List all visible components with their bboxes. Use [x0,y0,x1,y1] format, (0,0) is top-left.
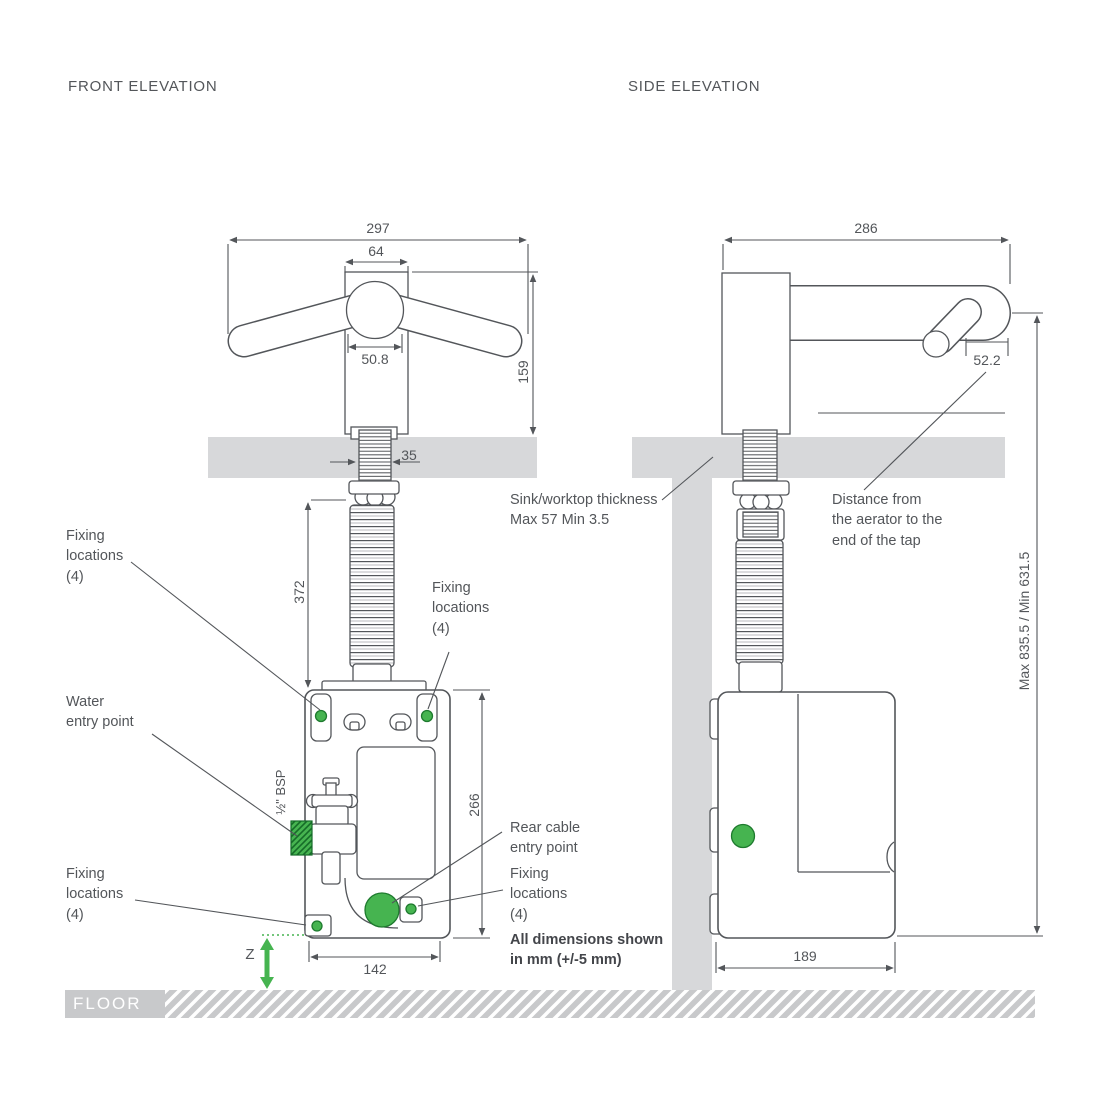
water-inlet-fitting [291,821,312,855]
fixing-point-bottom-left [312,921,322,931]
side-tap [722,273,983,692]
fixing-point-bottom-right [406,904,416,914]
side-aerator [923,331,949,357]
front-flexible-hose [350,505,394,667]
dim-z: Z [240,946,260,963]
dim-stem-width: 35 [392,447,426,463]
label-floor: FLOOR [73,994,142,1014]
side-elevation-title: SIDE ELEVATION [628,78,760,95]
side-cable-entry [732,825,755,848]
side-control-box [710,692,895,938]
fixing-point-top-left [316,711,327,722]
dim-height-range: Max 835.5 / Min 631.5 [1016,536,1032,706]
floor-band [65,990,1035,1018]
label-fixing-top-left: Fixing locations (4) [66,526,123,587]
label-fixing-bottom-right: Fixing locations (4) [510,864,567,925]
dimension-drawing-page: FRONT ELEVATION SIDE ELEVATION 297 64 50… [0,0,1100,1100]
label-water-entry: Water entry point [66,692,134,733]
side-hose-connector [739,662,782,692]
front-threaded-stem [359,430,391,482]
front-elevation-title: FRONT ELEVATION [68,78,218,95]
dim-aerator-to-end: 52.2 [962,352,1012,368]
dim-body-width: 64 [356,243,396,259]
label-rear-cable: Rear cable entry point [510,818,580,859]
rear-cable-entry [365,893,399,927]
front-backnut [349,481,399,494]
dim-hose-length: 372 [291,570,307,614]
side-worktop [632,437,1005,478]
side-backnut [733,481,789,495]
front-sensor-head [347,282,404,339]
dim-overall-depth: 286 [836,220,896,236]
dim-box-height: 266 [466,783,482,827]
side-flexible-hose [736,540,783,664]
dim-box-width: 142 [350,961,400,977]
dim-overall-width: 297 [348,220,408,236]
fixing-point-top-right [422,711,433,722]
z-arrow [260,935,305,989]
dim-box-depth: 189 [780,948,830,964]
dim-head-width: 50.8 [350,351,400,367]
front-control-box [291,681,450,938]
side-threaded-stem [743,430,777,482]
label-sink-thickness: Sink/worktop thickness Max 57 Min 3.5 [510,490,657,531]
label-dimensions-note: All dimensions shown in mm (+/-5 mm) [510,930,663,971]
label-fixing-top-right: Fixing locations (4) [432,578,489,639]
dim-tap-height: 159 [515,350,531,394]
label-fixing-bottom-left: Fixing locations (4) [66,864,123,925]
label-bsp: ½" BSP [272,757,290,827]
side-wall [672,478,712,990]
label-aerator-distance: Distance from the aerator to the end of … [832,490,942,551]
